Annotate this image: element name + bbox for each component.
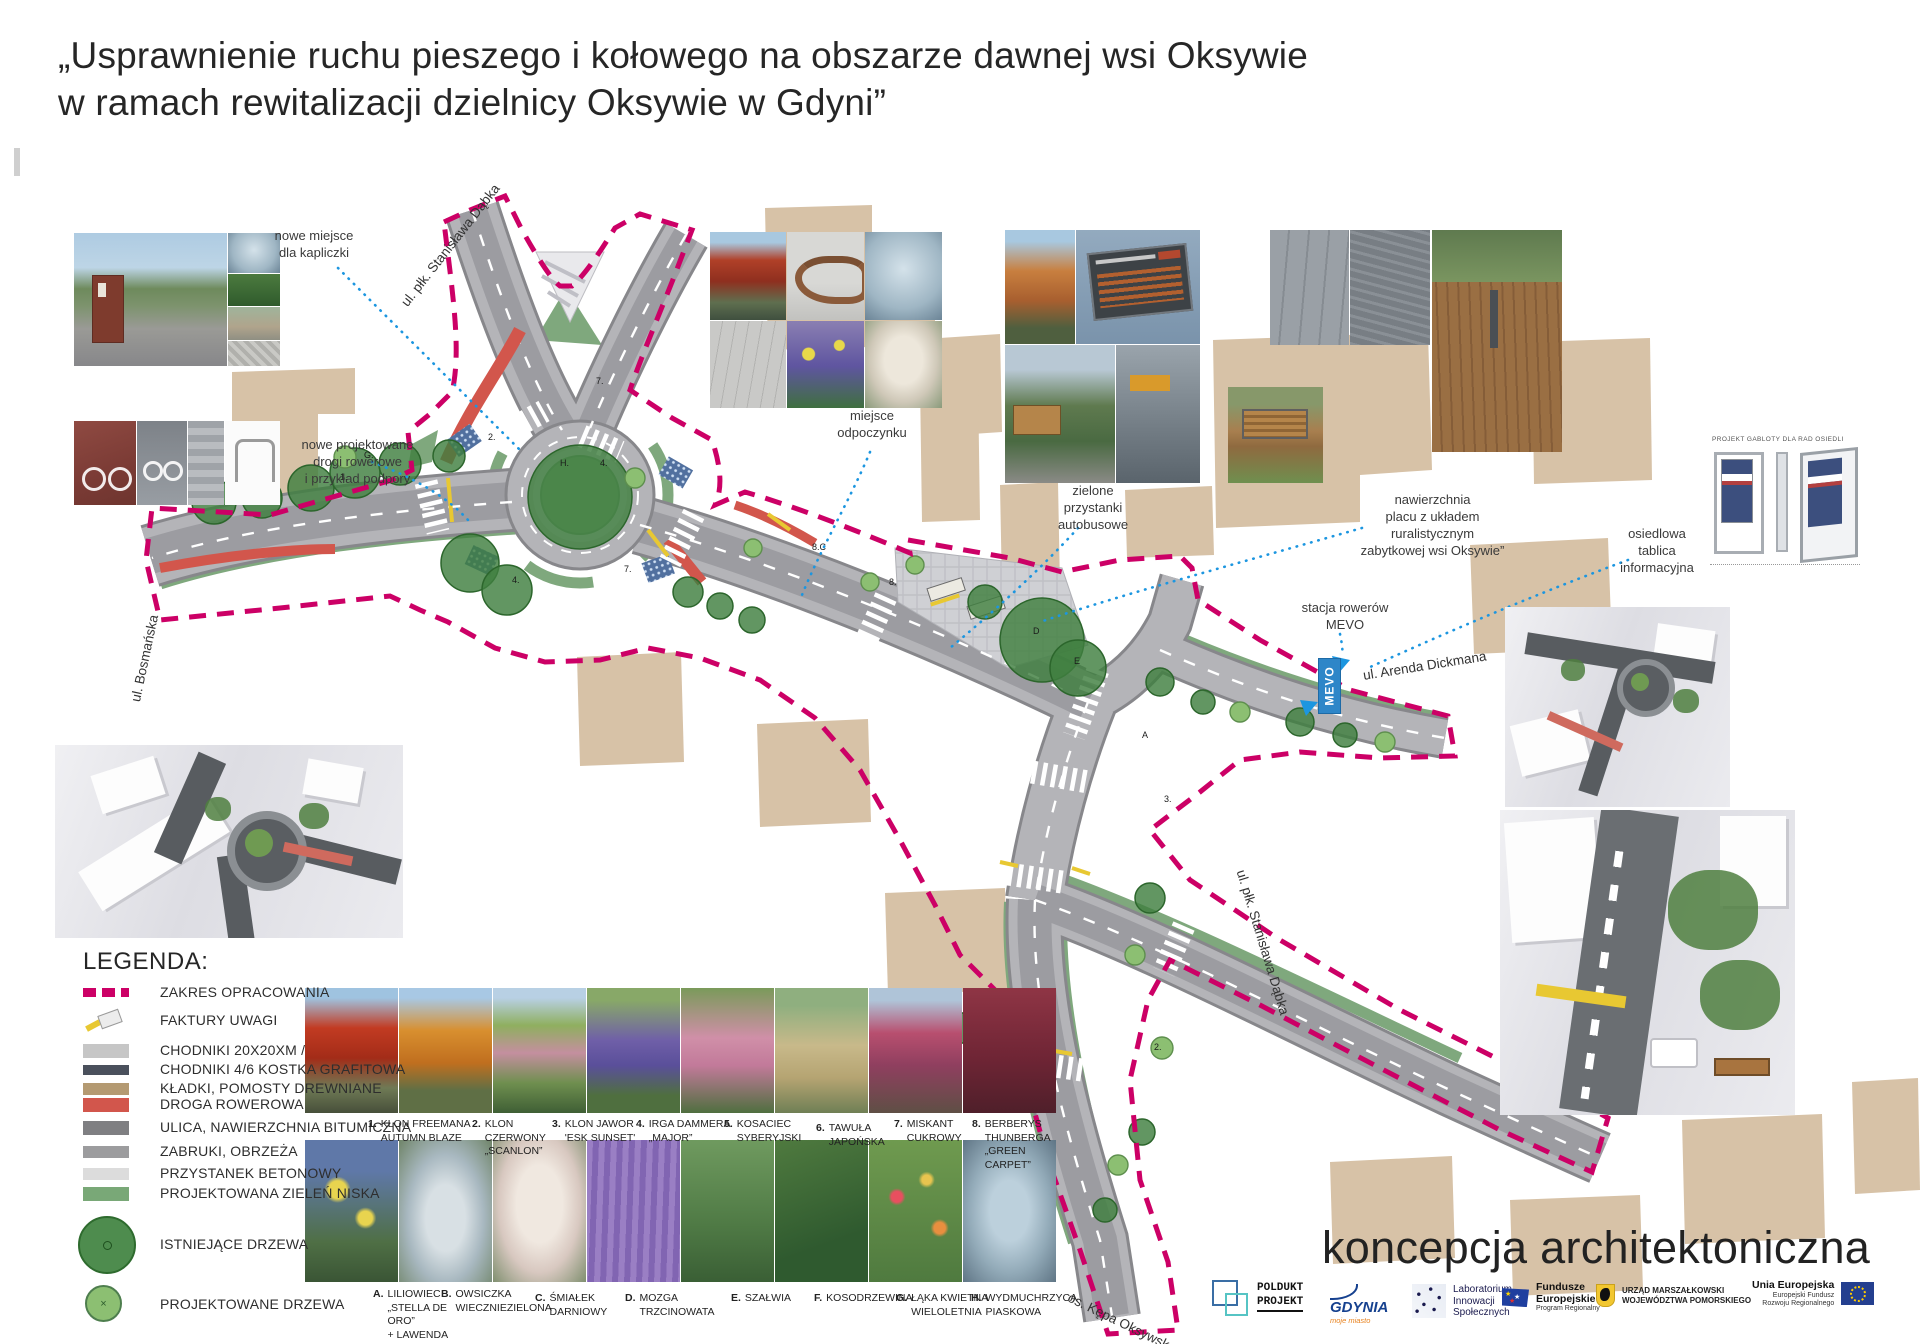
render-roundabout-aerial xyxy=(55,745,403,938)
logo-poldukt: POLDUKT PROJEKT xyxy=(1212,1278,1303,1316)
legend-item-zakres: ZAKRES OPRACOWANIA xyxy=(83,984,330,1001)
legend-item-faktury: FAKTURY UWAGI xyxy=(83,1010,277,1032)
bench-shape xyxy=(795,256,864,304)
eu-flag-icon xyxy=(1841,1282,1874,1305)
plant-label-b: B.OWSICZKA WIECZNIEZIELONA xyxy=(441,1288,545,1315)
plant-photo-5 xyxy=(681,988,774,1113)
logo-unia-europejska: Unia Europejska Europejski Fundusz Rozwo… xyxy=(1752,1280,1874,1308)
fe-sublabel: Program Regionalny xyxy=(1536,1305,1600,1313)
plant-label-6: 6.TAWUŁA JAPOŃSKA xyxy=(816,1122,906,1149)
gdynia-tagline: moje miasto xyxy=(1330,1316,1370,1325)
ue-sublabel: Europejski Fundusz Rozwoju Regionalnego xyxy=(1752,1292,1834,1308)
svg-text:2.: 2. xyxy=(488,432,496,442)
svg-text:4.: 4. xyxy=(512,575,520,585)
plant-photo-a xyxy=(305,1140,398,1282)
svg-text:7.: 7. xyxy=(624,564,632,574)
legend-item-chodniki-1: CHODNIKI 20X20XM / xyxy=(83,1042,305,1059)
legend-swatch-kladki xyxy=(83,1083,129,1095)
display-case-drawing: PROJEKT GABLOTY DLA RAD OSIEDLI xyxy=(1700,436,1870,586)
plant-photo-f xyxy=(775,1140,868,1282)
plant-photo-g xyxy=(869,1140,962,1282)
render-street-level xyxy=(1500,810,1795,1115)
logo-gdynia: GDYNIA moje miasto xyxy=(1330,1284,1388,1325)
legend-item-ulica: ULICA, NAWIERZCHNIA BITUMICZNA xyxy=(83,1119,411,1136)
page-title: „Usprawnienie ruchu pieszego i kołowego … xyxy=(58,32,1358,127)
ue-label: Unia Europejska xyxy=(1752,1280,1834,1292)
photo-white-grass xyxy=(865,321,942,408)
photo-silver-grass xyxy=(865,232,942,320)
legend-swatch-projected-tree: × xyxy=(85,1285,122,1322)
photo-plant-2 xyxy=(228,274,280,306)
mevo-station-label: MEVO xyxy=(1323,666,1337,705)
poldukt-line1: POLDUKT xyxy=(1257,1282,1303,1296)
deck-greenery xyxy=(1432,230,1562,282)
poldukt-line2: PROJEKT xyxy=(1257,1296,1303,1310)
legend-swatch-zabruki xyxy=(83,1146,129,1158)
plant-label-c: C.ŚMIAŁEK DARNIOWY xyxy=(535,1292,625,1319)
plant-label-4: 4.IRGA DAMMERA „MAJOR” xyxy=(636,1118,736,1145)
plant-photo-6 xyxy=(775,988,868,1113)
legend-item-kladki: KŁADKI, POMOSTY DREWNIANE xyxy=(83,1080,382,1097)
legend-swatch-przystanek xyxy=(83,1168,129,1180)
plant-label-1: 1.KLON FREEMANA AUTUMN BLAZE xyxy=(368,1118,472,1145)
photo-green-shelter xyxy=(1005,345,1115,483)
photo-red-maple xyxy=(710,232,786,320)
photo-stone-slabs xyxy=(1270,230,1349,345)
legend-swatch-chodniki-2 xyxy=(83,1065,129,1075)
annotation-plaza-paving: nawierzchnia placu z układem ruralistycz… xyxy=(1340,492,1525,560)
edge-tick xyxy=(14,148,20,176)
plant-photo-b xyxy=(399,1140,492,1282)
photo-bike-rack xyxy=(225,421,280,505)
photo-red-bike-lane xyxy=(74,421,136,505)
plant-label-5: 5.KOSACIEC SYBERYJSKI xyxy=(724,1118,820,1145)
svg-text:4.: 4. xyxy=(600,458,608,468)
logo-urzad-marszalkowski: URZĄD MARSZAŁKOWSKI WOJEWÓDZTWA POMORSKI… xyxy=(1596,1284,1751,1307)
photo-gravel xyxy=(228,341,280,366)
logo-lis: Laboratorium Innowacji Społecznych xyxy=(1412,1284,1512,1319)
legend-item-istniejace-drzewa: ISTNIEJĄCE DRZEWA xyxy=(160,1236,308,1253)
svg-text:2.: 2. xyxy=(1154,1042,1162,1052)
photo-curved-bench xyxy=(787,232,864,320)
plant-photo-2 xyxy=(399,988,492,1113)
svg-text:8.: 8. xyxy=(889,577,897,587)
annotation-rest-area: miejsce odpoczynku xyxy=(812,408,932,442)
bike-rack-shape xyxy=(235,439,275,482)
photo-autumn-tree xyxy=(1005,230,1075,344)
render-junction-aerial xyxy=(1505,607,1730,807)
svg-text:E: E xyxy=(1074,656,1080,666)
mevo-station-box: MEVO xyxy=(1318,658,1341,714)
poldukt-squares-icon xyxy=(1212,1278,1250,1316)
photo-etched-map-paving xyxy=(1350,230,1430,345)
plant-photo-3 xyxy=(493,988,586,1113)
photo-wooden-bench xyxy=(1228,387,1323,483)
svg-text:D: D xyxy=(1033,626,1040,636)
legend-swatch-droga xyxy=(83,1098,129,1112)
plant-photo-8 xyxy=(963,988,1056,1113)
chapel-niche xyxy=(98,283,106,297)
bollard-light xyxy=(1490,290,1498,348)
annotation-mevo-station: stacja rowerów MEVO xyxy=(1285,600,1405,634)
photo-cobblestone xyxy=(188,421,224,505)
photo-departure-board xyxy=(1076,230,1200,344)
legend-swatch-zielen xyxy=(83,1187,129,1201)
case-side-view xyxy=(1776,452,1788,552)
legend-swatch-faktury xyxy=(83,1010,129,1032)
plant-photo-c xyxy=(493,1140,586,1282)
photo-chapel-streetview xyxy=(74,233,227,366)
fe-flag-icon: ★ ★ ★ xyxy=(1502,1288,1529,1307)
plant-label-8: 8.BERBERYS THUNBERGA „GREEN CARPET” xyxy=(972,1118,1064,1173)
fe-label: Fundusze Europejskie xyxy=(1536,1282,1600,1305)
display-case-caption: PROJEKT GABLOTY DLA RAD OSIEDLI xyxy=(1712,436,1844,443)
gdynia-wordmark: GDYNIA xyxy=(1330,1301,1388,1315)
svg-text:3.: 3. xyxy=(1164,794,1172,804)
legend-item-droga-rowerowa: DROGA ROWEROWA xyxy=(83,1096,304,1113)
photo-rest-area-collage xyxy=(710,232,942,408)
photo-purple-flowers xyxy=(787,321,864,408)
legend-item-zielen: PROJEKTOWANA ZIELEŃ NISKA xyxy=(83,1185,380,1202)
annotation-chapel: nowe miejsce dla kapliczki xyxy=(254,228,374,262)
title-line-1: „Usprawnienie ruchu pieszego i kołowego … xyxy=(58,32,1358,79)
legend-item-chodniki-2: CHODNIKI 4/6 KOSTKA GRAFITOWA xyxy=(83,1061,405,1078)
plant-photo-e xyxy=(681,1140,774,1282)
yellow-bench-shape xyxy=(1130,375,1170,391)
photo-wood-deck xyxy=(1432,230,1562,452)
plant-label-h: H.WYDMUCHRZYCA PIASKOWA xyxy=(971,1292,1071,1319)
concept-title: koncepcja architektoniczna xyxy=(1322,1222,1870,1274)
case-perspective-view xyxy=(1800,447,1858,563)
photo-bike-collage xyxy=(74,421,280,505)
legend-heading: LEGENDA: xyxy=(83,948,208,976)
plant-photo-4 xyxy=(587,988,680,1113)
svg-text:H.: H. xyxy=(560,458,569,468)
case-front-view xyxy=(1714,452,1764,554)
annotation-info-board: osiedlowa tablica informacyjna xyxy=(1597,526,1717,577)
dimension-line xyxy=(1710,564,1860,565)
planter-box xyxy=(1013,405,1061,435)
photo-pavement-pair xyxy=(1270,230,1430,345)
legend-item-przystanek: PRZYSTANEK BETONOWY xyxy=(83,1165,341,1182)
plant-label-e: E.SZAŁWIA xyxy=(731,1292,811,1306)
bench-slats xyxy=(1242,409,1308,439)
photo-shelter-closeup xyxy=(1116,345,1200,483)
um-label: URZĄD MARSZAŁKOWSKI WOJEWÓDZTWA POMORSKI… xyxy=(1622,1286,1751,1304)
photo-chapel-collage xyxy=(74,233,280,366)
lis-network-icon xyxy=(1412,1284,1446,1318)
svg-text:A: A xyxy=(1142,730,1148,740)
svg-text:7.: 7. xyxy=(596,376,604,386)
legend-swatch-existing-tree xyxy=(78,1216,136,1274)
title-line-2: w ramach rewitalizacji dzielnicy Oksywie… xyxy=(58,79,1358,126)
plant-photo-d xyxy=(587,1140,680,1282)
legend-item-projektowane-drzewa: PROJEKTOWANE DRZEWA xyxy=(160,1296,345,1313)
photo-bus-stop-collage xyxy=(1005,230,1200,483)
chapel-shrine-shape xyxy=(92,275,124,343)
departure-board-screen xyxy=(1087,243,1194,321)
gdynia-sail-icon xyxy=(1330,1284,1358,1300)
annotation-green-bus-stops: zielone przystanki autobusowe xyxy=(1033,483,1153,534)
legend-item-zabruki: ZABRUKI, OBRZEŻA xyxy=(83,1143,298,1160)
griffin-shield-icon xyxy=(1596,1284,1615,1307)
legend-swatch-chodniki-1 xyxy=(83,1044,129,1058)
logo-fundusze: ★ ★ ★ Fundusze Europejskie Program Regio… xyxy=(1502,1282,1600,1313)
photo-paving xyxy=(710,321,786,408)
annotation-bike-paths: nowe projektowane drogi rowerowe i przyk… xyxy=(285,437,430,488)
legend-swatch-ulica xyxy=(83,1121,129,1135)
plant-photo-7 xyxy=(869,988,962,1113)
legend-swatch-boundary xyxy=(83,988,129,997)
concept-board: „Usprawnienie ruchu pieszego i kołowego … xyxy=(0,0,1920,1344)
photo-asphalt-bike-symbol xyxy=(137,421,187,505)
photo-plant-3 xyxy=(228,307,280,340)
